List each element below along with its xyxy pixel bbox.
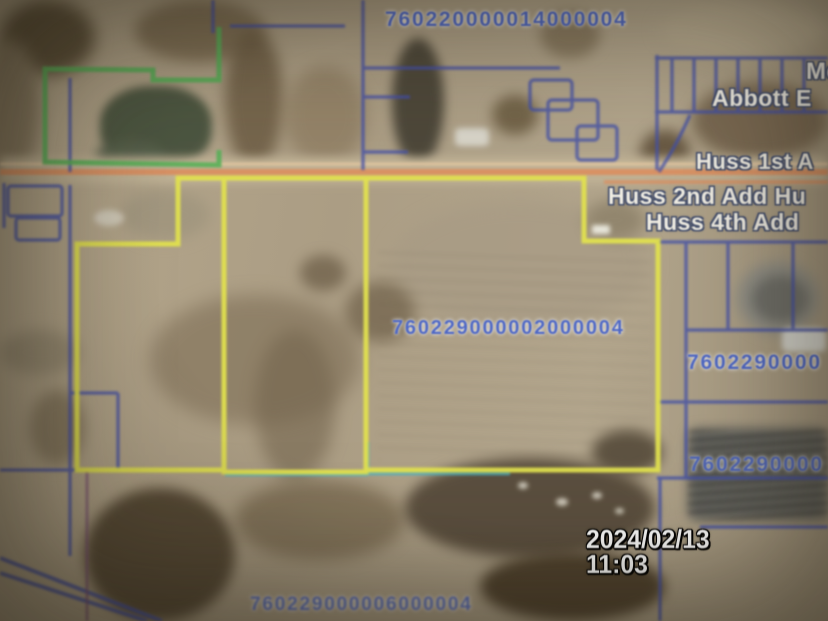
camera-timestamp: 2024/02/13 11:03 xyxy=(586,527,710,577)
parcel-map-photo: 760220000014000004 760229000002000004 76… xyxy=(0,0,828,621)
parcel-boundary-yellow-left xyxy=(77,178,224,470)
timestamp-time: 11:03 xyxy=(586,552,710,577)
parcel-number-right-lower: 7602290000 xyxy=(689,453,824,477)
parcel-number-top: 760220000014000004 xyxy=(385,8,628,32)
place-label-mc: Mc xyxy=(806,58,828,86)
parcel-number-right-upper: 7602290000 xyxy=(687,351,822,375)
parcel-boundary-yellow-middle xyxy=(224,178,366,472)
place-label-huss-4th: Huss 4th Add xyxy=(646,209,799,236)
place-label-huss-2nd: Huss 2nd Add Hu xyxy=(608,183,806,210)
place-label-huss-1st: Huss 1st A xyxy=(696,149,814,175)
parcel-number-bottom: 760229000006000004 xyxy=(250,594,473,616)
place-label-abbott: Abbott E xyxy=(712,85,812,112)
parcel-number-center: 760229000002000004 xyxy=(392,317,625,340)
